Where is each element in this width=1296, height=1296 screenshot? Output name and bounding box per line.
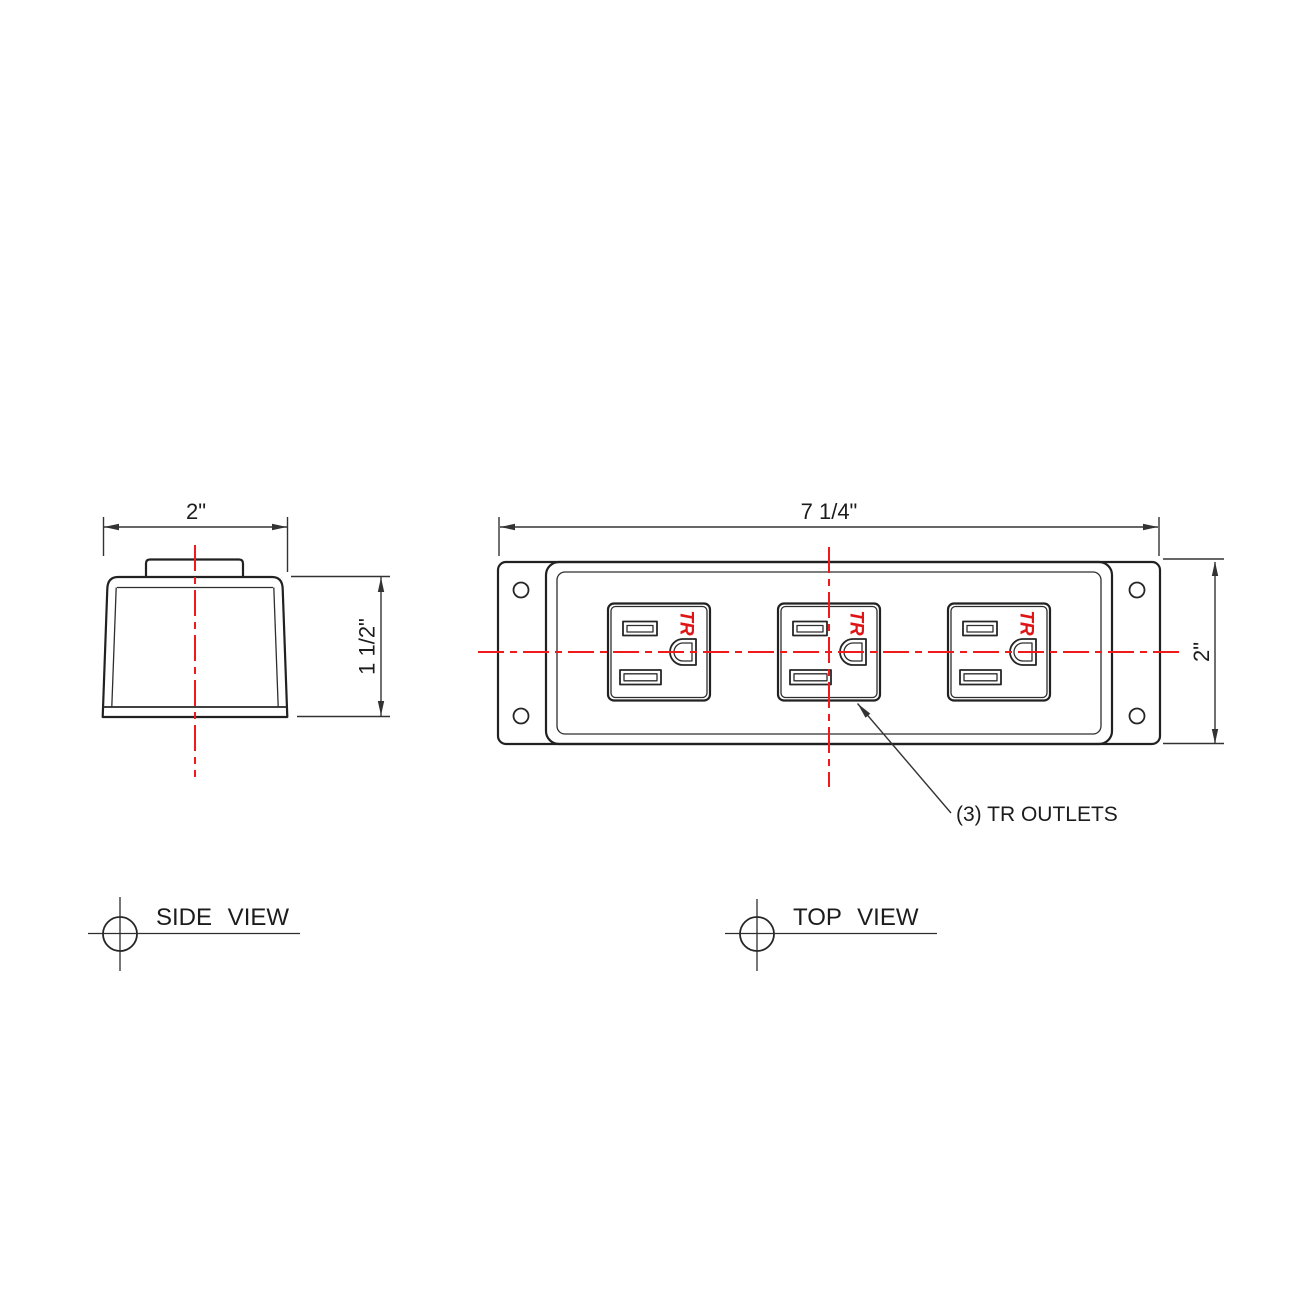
mounting-hole — [514, 709, 529, 724]
arrowhead — [1212, 729, 1218, 744]
mounting-hole — [1130, 583, 1145, 598]
top-view-group: 7 1/4" TR — [478, 499, 1224, 826]
outlet-slot-inner — [797, 626, 823, 633]
outlet-slot — [620, 670, 661, 685]
side-view-body — [103, 545, 288, 777]
side-view-height-dimension: 1 1/2" — [291, 577, 390, 717]
outlet-annotation: (3) TR OUTLETS — [858, 704, 1118, 827]
arrowhead — [378, 701, 384, 716]
tr-marking: TR — [676, 610, 697, 636]
top-width-dim-text: 7 1/4" — [801, 499, 858, 524]
outlet-slot — [623, 622, 657, 636]
outlet-slot-inner — [627, 626, 653, 633]
side-body-inner-slope — [112, 588, 116, 708]
side-width-dim-text: 2" — [186, 499, 206, 524]
arrowhead — [104, 524, 119, 530]
outlet-slot — [793, 622, 827, 636]
arrowhead — [500, 524, 515, 530]
top-view-label: TOP VIEW — [793, 904, 919, 931]
tr-marking: TR — [1016, 610, 1037, 636]
arrowhead — [1143, 524, 1158, 530]
arrowhead — [1212, 562, 1218, 577]
top-view-title: TOP VIEW — [725, 899, 937, 971]
outlet-slot — [960, 670, 1001, 685]
side-body-inner-slope — [274, 588, 278, 708]
arrowhead — [378, 578, 384, 593]
drawing-svg: 2" 1 1/2" 7 — [0, 0, 1296, 1296]
side-view-label: SIDE VIEW — [156, 904, 289, 931]
mounting-hole — [514, 583, 529, 598]
top-height-dim-text: 2" — [1189, 642, 1214, 662]
mounting-hole — [1130, 709, 1145, 724]
technical-drawing-canvas: 2" 1 1/2" 7 — [0, 0, 1296, 1296]
leader-line — [858, 704, 952, 814]
arrowhead — [272, 524, 287, 530]
side-view-group: 2" 1 1/2" — [103, 499, 390, 777]
tr-marking: TR — [846, 610, 867, 636]
outlet-slot-inner — [794, 674, 827, 681]
outlet-slot — [963, 622, 997, 636]
annotation-text: (3) TR OUTLETS — [956, 803, 1118, 826]
side-view-title: SIDE VIEW — [88, 897, 300, 971]
outlet-slot-inner — [967, 626, 993, 633]
outlet-slot-inner — [964, 674, 997, 681]
outlet-slot — [790, 670, 831, 685]
side-height-dim-text: 1 1/2" — [355, 618, 380, 675]
outlet-slot-inner — [624, 674, 657, 681]
